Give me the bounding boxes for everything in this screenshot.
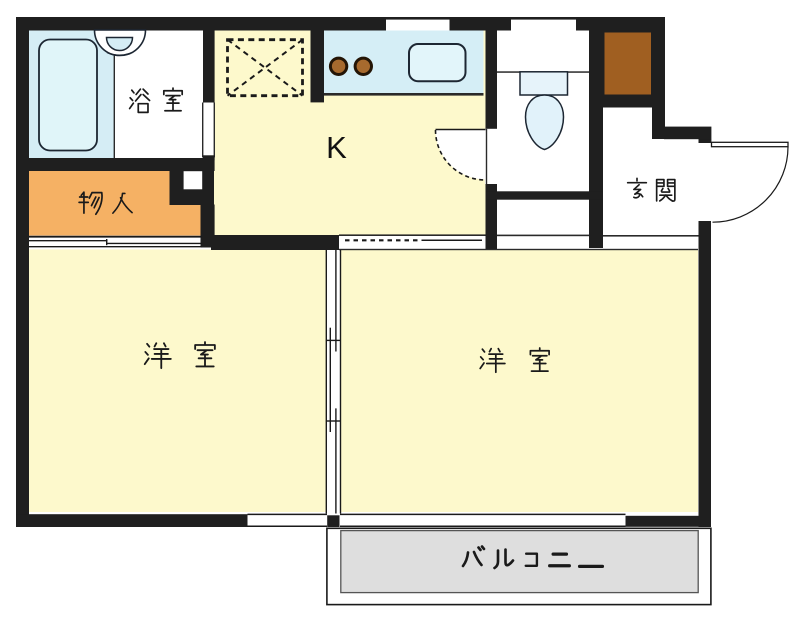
svg-text:K: K — [326, 130, 347, 165]
